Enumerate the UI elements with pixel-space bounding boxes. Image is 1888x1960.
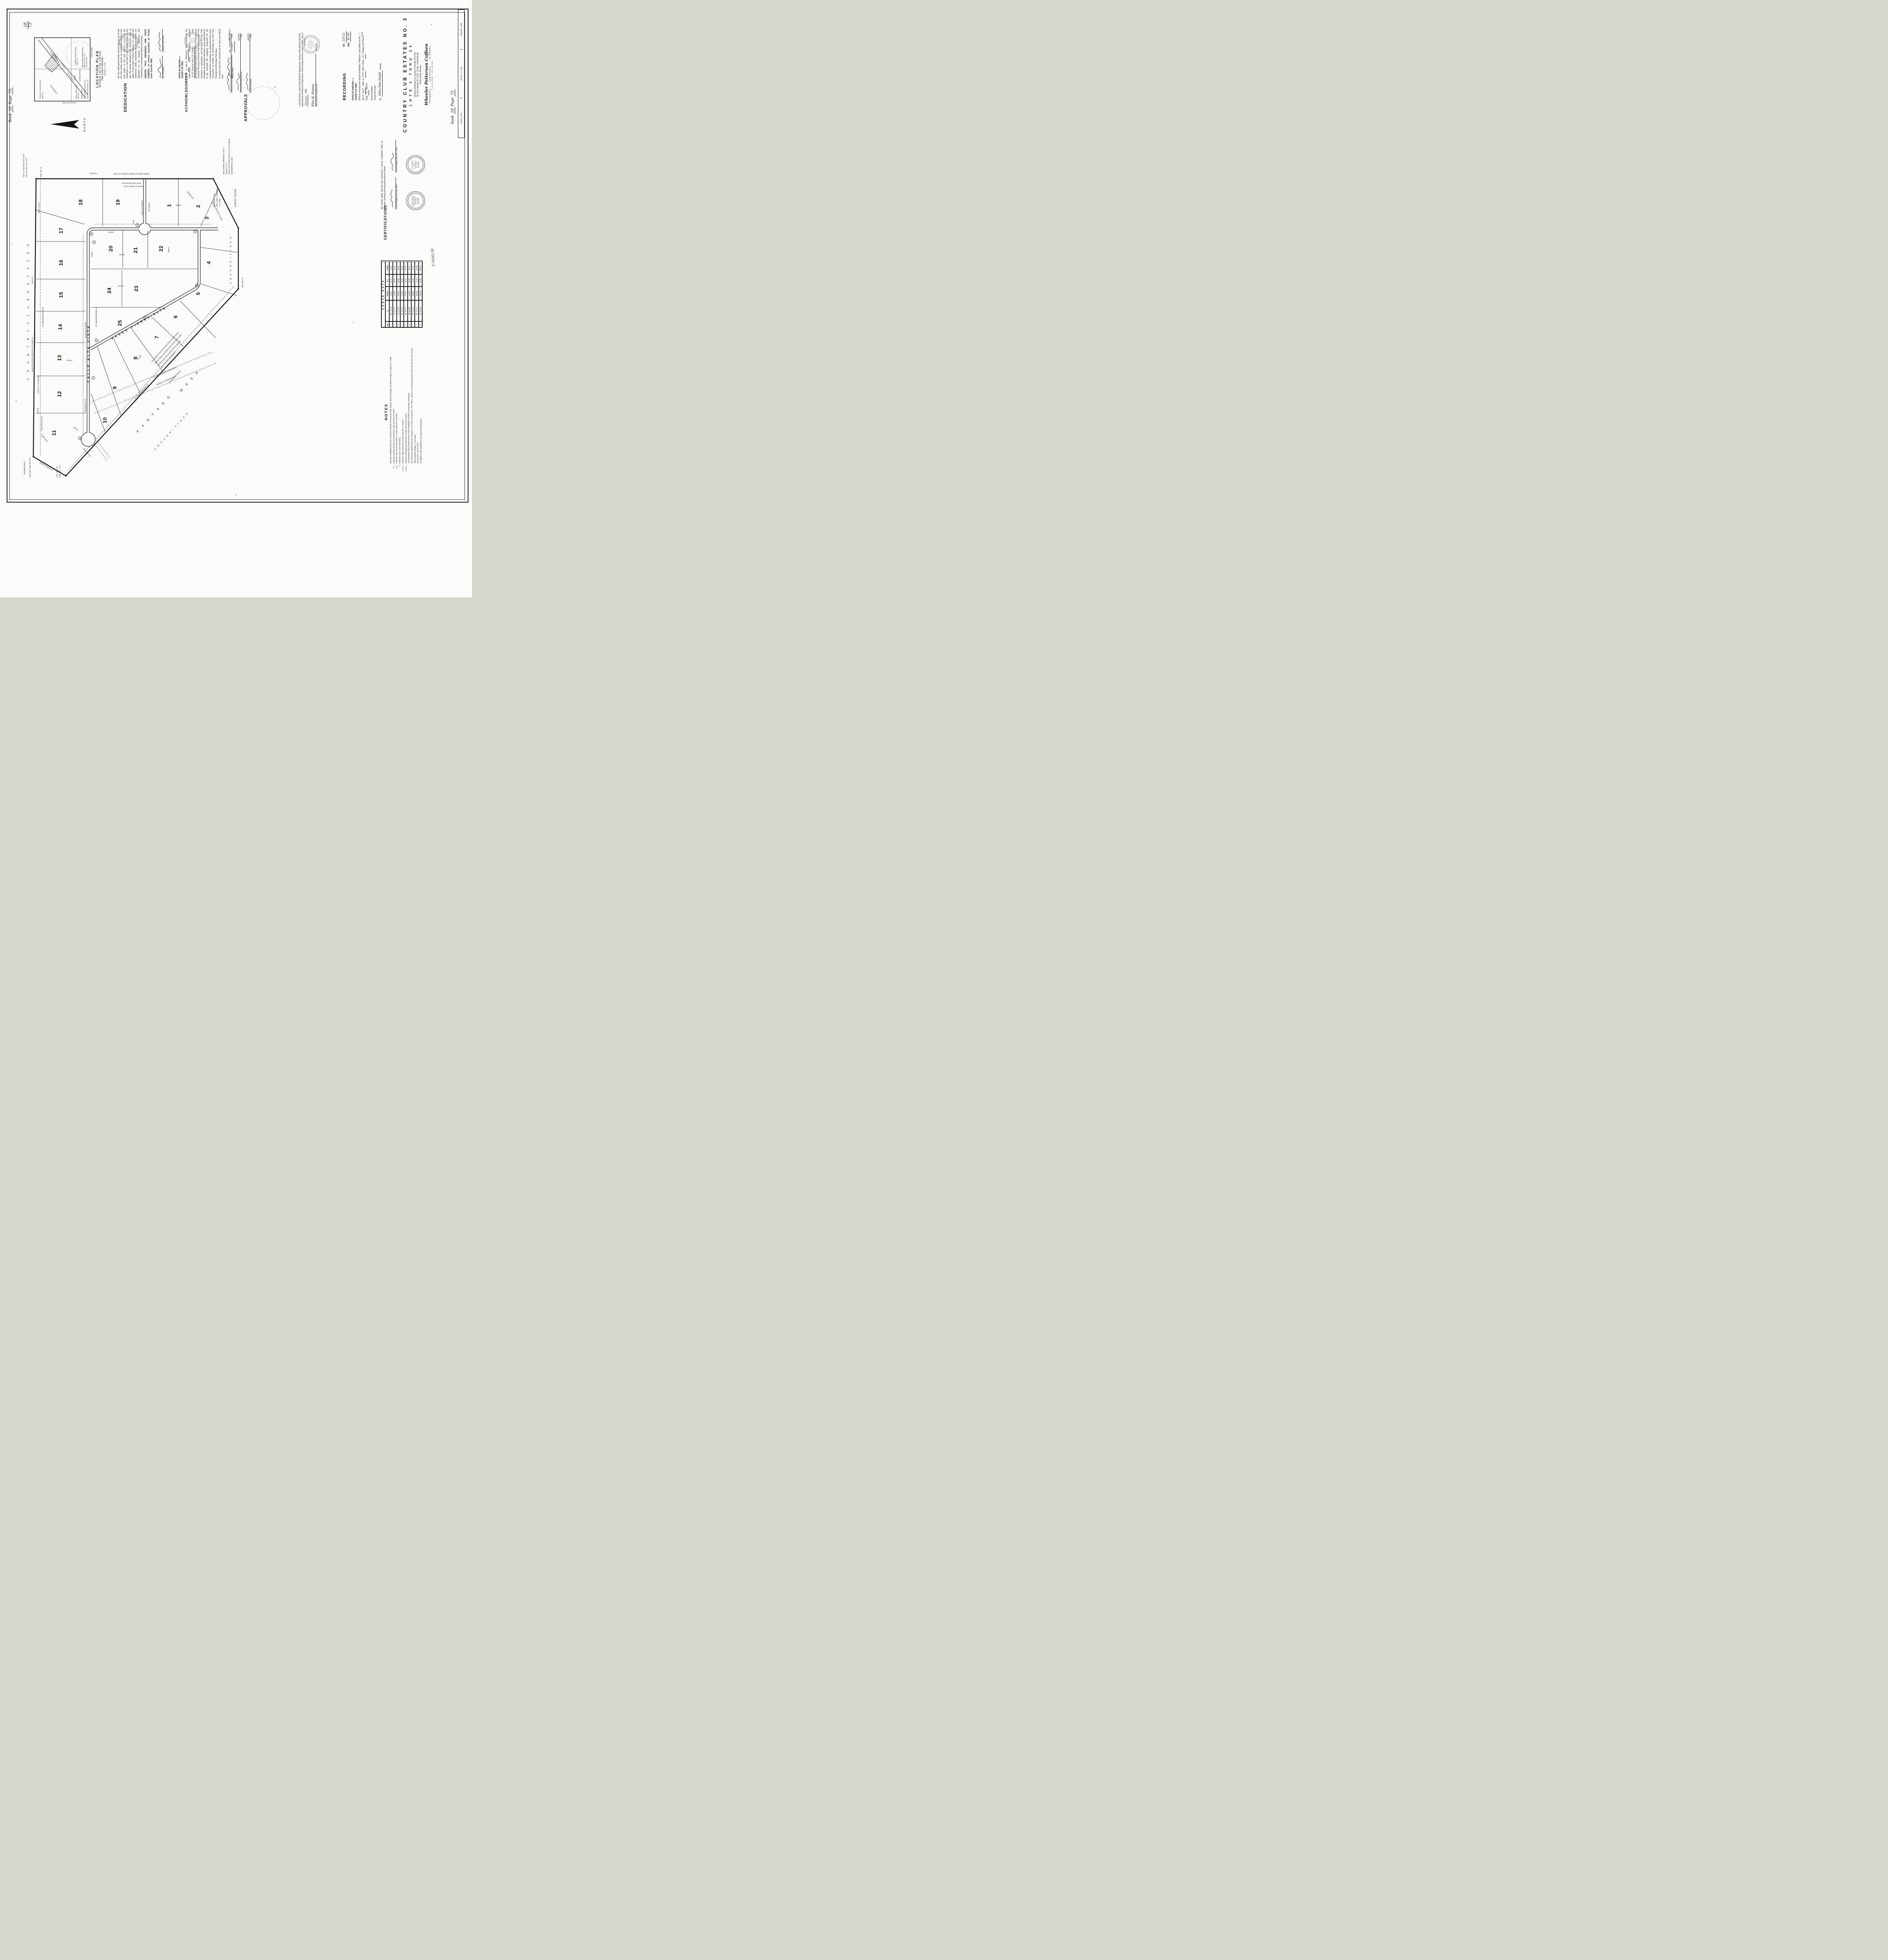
lot-number: 22 bbox=[158, 245, 164, 251]
north-arrow-icon bbox=[49, 114, 82, 135]
landscape-sheet: Book 18 Page 73 18 73 book 18 Page 73 C-… bbox=[0, 0, 472, 597]
map-label: NORTH (REC) N 0°02'00" E (MEAS.) 1770.86… bbox=[113, 173, 149, 175]
lp-label: UNSUB. bbox=[74, 75, 76, 80]
note-symbol bbox=[414, 465, 416, 475]
book-page-stamp-bottom: book 18 Page 73 bbox=[451, 89, 455, 124]
lp-label: GLENN STREET bbox=[81, 89, 83, 99]
note-text: Gross area = 21.43 acres bbox=[417, 333, 419, 463]
recording-text: thereof. bbox=[366, 83, 368, 89]
approval-label: County Planning Director bbox=[241, 72, 243, 93]
map-label: FND. 1/2" I.P. bbox=[40, 167, 42, 177]
dimension-label: 190.00' bbox=[119, 254, 125, 256]
map-label: TATION SHALL BE ISSUED SOUTH AND/OR bbox=[157, 340, 181, 367]
curve-cell: 25.00' bbox=[400, 287, 404, 300]
curve-cell: 5 bbox=[404, 321, 407, 327]
map-label: BLOCK 2 bbox=[90, 172, 98, 174]
lot-number: 15 bbox=[58, 292, 64, 298]
lp-label: CARLOS TERRACE M&P 12-18 bbox=[84, 80, 86, 99]
signature-scribble bbox=[245, 71, 250, 93]
curve-cell: 4 bbox=[400, 321, 404, 327]
signature-scribble bbox=[390, 151, 394, 172]
corporate-seal: ARIZONA TITLE INSURANCE AND TRUST CO. · … bbox=[119, 33, 138, 52]
sheet-strip: SHEET 1 OF 1 SCALE: 1" = 100' JANUARY, 1… bbox=[458, 9, 465, 138]
note-symbol bbox=[411, 465, 413, 475]
curve-cell: 150.00' bbox=[415, 287, 418, 300]
ack-day: 3 bbox=[185, 68, 189, 71]
curve-marker: 1 bbox=[93, 377, 95, 378]
date-word: Date bbox=[231, 34, 233, 38]
lot-number: 17 bbox=[58, 227, 64, 233]
note-text: Indicates new survey monument; 2" brass … bbox=[396, 333, 398, 463]
note-item: 5/8" aluminum capped steel pin, stamped … bbox=[411, 333, 413, 475]
lot-number: 9 bbox=[112, 386, 118, 389]
signature-scribble bbox=[236, 71, 240, 93]
note-text: The Developer will not pave streets of t… bbox=[408, 333, 410, 463]
recording-heading: RECORDING bbox=[342, 73, 348, 100]
map-label: MILLSTONE COMMERCIAL NO. 1 bbox=[223, 147, 225, 174]
ack-month: February bbox=[185, 49, 189, 61]
curve-cell: 2 bbox=[393, 321, 396, 327]
map-label: 15' UNDERGROUND U.E. bbox=[95, 307, 97, 327]
recording-time: 9:50 bbox=[362, 71, 366, 78]
recorder-name: Anna Sullinger bbox=[370, 31, 374, 100]
dimension-label: 120.00' bbox=[73, 426, 79, 431]
map-label: TOWNSHIP COR. bbox=[213, 193, 215, 207]
note-text: All utilities in this subdivision to be … bbox=[420, 333, 422, 463]
recording-state: STATE OF ARIZONA bbox=[352, 81, 354, 100]
curve-cell: 44.90' bbox=[411, 274, 415, 287]
curve-cell: 150.00' bbox=[411, 287, 415, 300]
note-item: ═ U.E. ═Indicates utility easement, loca… bbox=[402, 333, 404, 475]
certifications-body: We hereby certify that this plat represe… bbox=[381, 140, 387, 209]
firm-roles: ENGINEERS SURVEYORS PLANNERS bbox=[429, 11, 431, 138]
recording-no: 23112 bbox=[342, 31, 347, 42]
book-word: book bbox=[451, 115, 455, 124]
lot-number: 6 bbox=[172, 315, 178, 318]
note-text: Bearings established from the south line… bbox=[390, 333, 392, 463]
map-label: 450.65' N 0°02'08" E (M.) bbox=[123, 185, 143, 187]
signature-scribble bbox=[158, 58, 162, 78]
recording-text: Filed for record at the request of Wheel… bbox=[359, 36, 361, 100]
map-label: BLOCK 9 bbox=[31, 276, 33, 284]
county-seal: BOARD OF SUPERVISORS PIMA COUNTY ARIZONA bbox=[302, 35, 320, 53]
plat-desc: SE 1/4 of Section 36, T.13S., R.14E., G.… bbox=[417, 11, 419, 138]
curve-cell: 24.92' bbox=[404, 274, 407, 287]
curve-cell: 33° 18' 28" bbox=[411, 300, 415, 321]
dimension-label: 108.91' bbox=[168, 247, 170, 252]
date-word: Date bbox=[241, 34, 243, 38]
clerk-label: Clerk, Board of Supervisors bbox=[316, 54, 319, 107]
dedication-company: ARIZONA TITLE INSURANCE AND TRUST COMPAN… bbox=[145, 29, 153, 78]
ack-names: W. H. Driscoll and J. E. Green bbox=[192, 46, 195, 78]
curve-cell: 90° 00' 00" bbox=[408, 300, 411, 321]
firm-name: Wheeler Petterson Coffeen bbox=[424, 11, 429, 138]
plat-desc: Pima County, Arizona. bbox=[419, 11, 422, 138]
curve-marker: 4 bbox=[194, 230, 197, 232]
map-label: 25.00' N 0°02'08" E bbox=[141, 200, 143, 215]
plat-sheet-scan: Book 18 Page 73 18 73 book 18 Page 73 C-… bbox=[0, 0, 472, 597]
lp-label: M&P 8-75 bbox=[42, 92, 44, 99]
curve-cell: 25.00' bbox=[408, 287, 411, 300]
curve-cell: 25.00' bbox=[404, 287, 407, 300]
map-label: 10' UNDERGROUND U.E. bbox=[42, 307, 44, 327]
curve-col-delta: Δ bbox=[385, 300, 389, 321]
recording-text: , 1966, at bbox=[362, 79, 365, 87]
clerk-signature: Elsa B. Hanna bbox=[311, 54, 316, 107]
map-label: EXCLUDED bbox=[41, 434, 48, 443]
map-label: FND. 3/4" L.C.P. bbox=[59, 465, 61, 477]
lp-label: GLENN LOWELL ADD'N bbox=[76, 84, 77, 99]
curve-marker: 2 bbox=[79, 437, 82, 439]
note-item: Bearings established from the south line… bbox=[390, 333, 392, 475]
map-label: PAVED 20' DRAINAGEWAY bbox=[156, 375, 176, 386]
curve-cell: 101° 32' 08" bbox=[389, 300, 393, 321]
recording-fee-label: FEE: bbox=[348, 42, 350, 47]
dimension-label: N 0°12'43" E 160.00' bbox=[85, 322, 87, 338]
lot-number: 21 bbox=[133, 247, 138, 253]
location-plan-scale: SCALE 3" = 1 MI. bbox=[104, 34, 106, 103]
map-label: BLOCKS 1 & 2 bbox=[225, 162, 227, 174]
lot-number: 12 bbox=[56, 391, 62, 397]
curve-cell: 36.14' bbox=[397, 261, 400, 274]
book-number: 18 bbox=[9, 105, 13, 112]
street-name-calle-alta-vista: CALLE ALTA VISTA bbox=[87, 324, 90, 383]
map-label: BOOK 16 OF MAPS AND PLATS AT PAGE 58 bbox=[228, 139, 230, 174]
curve-cell: 150.00' bbox=[419, 287, 422, 300]
note-text: Indicates existing survey monument found… bbox=[393, 333, 395, 463]
approval-label: Sanitary District No. 1 bbox=[231, 74, 233, 93]
title-block: COUNTRY CLUB ESTATES NO. 3 LOTS 1 THRU 2… bbox=[403, 11, 434, 138]
map-label: 80' RADIAL bbox=[148, 202, 150, 211]
lot-number: 11 bbox=[51, 430, 57, 436]
plat-map-svg: 1 2 3 4 5 6 7 8 9 CALLE ALTA VISTA PASEO… bbox=[20, 139, 245, 480]
map-label: U N S U B D I V I D E D bbox=[154, 412, 189, 451]
note-symbol bbox=[408, 465, 410, 475]
lot-number: 19 bbox=[115, 199, 121, 205]
signature-scribble bbox=[227, 71, 231, 93]
firm-city: TUCSON, ARIZONA bbox=[432, 11, 434, 138]
dimension-label: 165.08' bbox=[108, 231, 114, 233]
fraction-bottom: 73 bbox=[28, 21, 33, 29]
curve-marker: 3 bbox=[136, 224, 139, 225]
curve-marker: 6 bbox=[96, 339, 98, 341]
curve-cell: 39° 10' 58" bbox=[419, 300, 422, 321]
drainage-easement-symbol: ═ D.E. ═ bbox=[405, 465, 407, 475]
map-label: CTR. SEC. 36 bbox=[56, 466, 58, 477]
faded-stamp bbox=[246, 86, 280, 120]
curve-data-table: CURVE DATA No. Δ Radius S.T. Length 1101… bbox=[381, 260, 423, 328]
curve-cell: 25.00' bbox=[408, 274, 411, 287]
notary-seal: NOTARY PUBLIC PIMA CO. ARIZONA bbox=[184, 32, 201, 49]
curve-cell: 39.27' bbox=[408, 261, 411, 274]
map-label: MARCH 27, 1948 bbox=[34, 333, 36, 347]
note-text: Total roadway mileage = 0.46 miles bbox=[414, 333, 416, 463]
map-label: 16' UNDERGROUND U.E. bbox=[134, 383, 149, 400]
map-label: N 0°06'29" E 250.00' bbox=[39, 461, 53, 472]
existing-monument-symbol: —□— bbox=[393, 465, 395, 475]
page-number: 73 bbox=[9, 87, 13, 94]
curve-cell: 89° 49' 25" bbox=[404, 300, 407, 321]
map-label: UNSUBDIVIDED bbox=[24, 461, 25, 474]
map-label: 1/16 COR. FND. 3/4" O.P. bbox=[29, 457, 31, 477]
board-text: , 1966. bbox=[305, 88, 307, 94]
lp-label: CRAYCROFT ROAD bbox=[62, 102, 76, 103]
note-item: Total roadway mileage = 0.46 miles bbox=[414, 333, 416, 475]
map-label: EXISTING 10' U.E. bbox=[41, 416, 43, 430]
assistant-secretary-label: Assistant Secretary bbox=[163, 29, 165, 52]
lot-number: 23 bbox=[133, 285, 139, 291]
fraction-top: 18 bbox=[24, 21, 28, 29]
curve-cell: 1 bbox=[389, 321, 393, 327]
dimension-label: 170.00' bbox=[67, 359, 73, 361]
curve-cell: 25.00' bbox=[393, 287, 396, 300]
signature-scribble bbox=[390, 187, 394, 209]
note-item: —□—Indicates existing survey monument fo… bbox=[393, 333, 395, 475]
corner-fraction: 18 73 bbox=[24, 21, 33, 29]
map-label: BOOK 8 OF MAPS AND PLATS AT PAGE 75 bbox=[31, 338, 33, 372]
book-page-stamp-top: Book 18 Page 73 bbox=[9, 87, 13, 122]
map-label: R=50' bbox=[133, 220, 134, 224]
curve-marker: 5 bbox=[93, 241, 96, 243]
vice-president-label: Vice President bbox=[163, 56, 165, 78]
curve-cell: 78° 27' 57" bbox=[393, 300, 396, 321]
approval-row: 4/6/66 County Planning Director Date bbox=[236, 34, 243, 93]
map-label: NOVEMBER 23, 1962 bbox=[231, 157, 233, 174]
seal-text: ARIZONA bbox=[194, 37, 196, 44]
lot-number: 10 bbox=[102, 417, 108, 423]
map-label: EXCLUDED bbox=[187, 191, 194, 200]
dimension-label: 153.00' bbox=[91, 252, 93, 257]
recording-fee: $5.00 bbox=[347, 31, 351, 42]
note-symbol bbox=[417, 465, 419, 475]
lot-number: 3 bbox=[204, 216, 210, 220]
ack-witness: In witness whereof I hereunto set my han… bbox=[219, 29, 225, 78]
curve-symbol: ① bbox=[399, 465, 401, 475]
curve-cell: 25.08' bbox=[400, 274, 404, 287]
lot-number: 4 bbox=[206, 261, 212, 264]
recording-text: day of bbox=[362, 95, 365, 100]
approval-row: 4/6/66 County Engineer Date bbox=[245, 34, 252, 93]
curve-cell: 102.57' bbox=[419, 261, 422, 274]
dimension-label: 215.00' bbox=[176, 204, 181, 206]
lot-number: 25 bbox=[117, 320, 123, 326]
note-symbol bbox=[420, 465, 422, 475]
curve-cell: 39.35' bbox=[400, 261, 404, 274]
curve-cell: 34.24' bbox=[393, 261, 396, 274]
seal-text: · SEAL · bbox=[130, 40, 132, 45]
note-item: ═ D.E. ═Indicates drainageway easement, … bbox=[405, 333, 407, 475]
map-label: U N S U B D I V I D E D bbox=[230, 236, 232, 284]
note-item: Gross area = 21.43 acres bbox=[417, 333, 419, 475]
lp-label: M&P 15-16 bbox=[78, 93, 79, 99]
faded-stamp bbox=[66, 41, 93, 67]
recording-page: 73 bbox=[366, 90, 369, 95]
plat-desc: Being a subdivision of a portion of the … bbox=[414, 11, 417, 138]
lot-number: 2 bbox=[195, 205, 201, 208]
note-text: Indicates drainageway easement, location… bbox=[405, 333, 407, 463]
curve-col-radius: Radius bbox=[385, 287, 389, 300]
map-label: P A N T A N O bbox=[136, 394, 172, 433]
plat-title: COUNTRY CLUB ESTATES NO. 3 bbox=[403, 11, 408, 138]
book-word: Book bbox=[9, 113, 13, 122]
curve-cell: 3 bbox=[397, 321, 400, 327]
map-label: FND. CONC. STAMPED bbox=[216, 188, 218, 207]
new-monument-symbol: —●— bbox=[396, 465, 398, 475]
recording-text: A.M. in Book bbox=[362, 60, 365, 71]
deputy-signature: Edna Mae Smyth bbox=[378, 71, 383, 97]
sheet-scale: SCALE: 1" = 100' bbox=[460, 49, 462, 98]
lot-number: 24 bbox=[106, 287, 112, 294]
curve-cell: 50.00' bbox=[397, 287, 400, 300]
ack-ss: s.s. bbox=[179, 56, 181, 59]
curve-marker: 8 bbox=[196, 285, 198, 286]
curve-cell: 20.41' bbox=[393, 274, 396, 287]
lot-number: 1 bbox=[166, 204, 172, 207]
location-plan-title: LOCATION PLAN bbox=[95, 34, 99, 103]
utility-easement-symbol: ═ U.E. ═ bbox=[402, 465, 404, 475]
lp-label: SAHUARA AVENUE bbox=[79, 69, 81, 82]
map-label: FND. 2" C.P. MK'D R-14, R-15 bbox=[23, 154, 25, 177]
curve-cell: 9 bbox=[419, 321, 422, 327]
lp-label: PANTANO bbox=[66, 72, 74, 81]
page-word: Page bbox=[451, 98, 455, 106]
recording-month: April bbox=[362, 87, 366, 94]
map-label: GRANT ROAD bbox=[234, 189, 237, 207]
curve-cell: 71.26' bbox=[415, 274, 418, 287]
page-number: 73 bbox=[451, 89, 455, 96]
curve-cell: 133.05' bbox=[415, 261, 418, 274]
registration-1: Arizona Registration No. 2067 bbox=[396, 177, 399, 209]
north-label: NORTH bbox=[84, 114, 86, 135]
certifications-section: CERTIFICATIONS We hereby certify that th… bbox=[381, 140, 399, 240]
approval-row: 4/6/66 Sanitary District No. 1 Date bbox=[227, 34, 233, 93]
signature-scribble bbox=[158, 31, 162, 52]
map-label: "L.S. 4785" bbox=[219, 198, 221, 207]
notes-section: NOTES Bearings established from the sout… bbox=[384, 333, 423, 475]
lot-number: 5 bbox=[195, 292, 201, 295]
lp-label: CASAS DE CARLOS M&P 10-96 bbox=[87, 80, 89, 99]
curve-cell: 90° 10' 35" bbox=[400, 300, 404, 321]
ack-text: On the bbox=[185, 72, 188, 78]
map-label: FND. 5/8" I.P. bbox=[241, 278, 243, 288]
lot-number: 18 bbox=[78, 199, 84, 205]
sheet-date: JANUARY, 1966 bbox=[460, 10, 462, 49]
ack-state: STATE OF ARIZONA bbox=[179, 59, 181, 78]
deputy-label: Deputy bbox=[379, 63, 383, 69]
surveyor-seal: REGISTERED LAND SURVEYOR No. 4785 ARIZON… bbox=[406, 155, 425, 174]
curve-cell: 18.90' bbox=[397, 274, 400, 287]
recorder-label: County Recorder bbox=[374, 31, 377, 100]
map-label: N 89°47'17" W 1555.66' bbox=[37, 375, 39, 394]
note-item: All utilities in this subdivision to be … bbox=[420, 333, 422, 475]
map-label: EAST LINE SECTION 36 bbox=[122, 182, 141, 184]
note-text: Indicates curve, see curve data. bbox=[399, 333, 401, 463]
lot-number: 16 bbox=[58, 260, 64, 265]
curve-cell: 44.30' bbox=[389, 261, 393, 274]
note-text: Indicates utility easement, location and… bbox=[402, 333, 404, 463]
book-number: 18 bbox=[451, 107, 455, 114]
board-text: day of bbox=[301, 33, 304, 38]
recording-section: RECORDING NO. 23112 FEE: $5.00 STATE OF … bbox=[342, 31, 383, 100]
lp-label: COUNTRY CLUB ESTATES bbox=[40, 80, 41, 99]
note-item: —●—Indicates new survey monument; 2" bra… bbox=[396, 333, 398, 475]
note-text: 5/8" aluminum capped steel pin, stamped … bbox=[411, 333, 413, 463]
date-word: Date bbox=[250, 34, 252, 38]
curve-cell: 53.38' bbox=[419, 274, 422, 287]
lot-number: 7 bbox=[154, 336, 160, 339]
note-item: ①Indicates curve, see curve data. bbox=[399, 333, 401, 475]
lp-label: UNSUBDIVIDED bbox=[50, 85, 58, 94]
curve-col-no: No. bbox=[385, 321, 389, 327]
curve-cell: 7 bbox=[411, 321, 415, 327]
north-arrow: NORTH bbox=[49, 114, 86, 135]
note-symbol bbox=[390, 465, 392, 475]
map-label: EXIST. 5' U.E. bbox=[38, 202, 40, 213]
certifications-heading: CERTIFICATIONS bbox=[381, 212, 399, 240]
dedication-heading: DEDICATION bbox=[118, 82, 165, 112]
seal-text: ARIZONA bbox=[312, 41, 314, 47]
recording-county: COUNTY OF PIMA bbox=[355, 83, 358, 100]
seal-text: ARIZONA bbox=[418, 162, 419, 168]
dimension-label: 160.00' bbox=[118, 285, 123, 287]
engineer-seal: REGISTERED PROFESSIONAL ENGINEER No. 206… bbox=[406, 191, 425, 210]
plat-subtitle: LOTS 1 THRU 25 bbox=[409, 11, 412, 138]
board-month: February bbox=[305, 95, 308, 107]
curve-cell: 8 bbox=[415, 321, 418, 327]
lot-number: 14 bbox=[57, 324, 63, 330]
curve-col-st: S.T. bbox=[385, 274, 389, 287]
page-word: Page bbox=[9, 96, 13, 104]
sheet-count: SHEET 1 OF 1 bbox=[460, 98, 462, 138]
curve-data-title: CURVE DATA bbox=[381, 261, 385, 327]
curve-col-length: Length bbox=[385, 261, 389, 274]
notes-heading: NOTES bbox=[384, 333, 388, 420]
curve-cell: 30.62' bbox=[389, 274, 393, 287]
registration-2: Arizona Registration No. 4785 bbox=[396, 140, 399, 172]
map-label: EXISTING 5' U.E. bbox=[84, 399, 86, 412]
map-label: C O U N T R Y C L U B E S T A T E S bbox=[27, 241, 30, 380]
note-item: The Developer will not pave streets of t… bbox=[408, 333, 410, 475]
recording-by: By bbox=[379, 98, 383, 100]
curve-cell: 6 bbox=[408, 321, 411, 327]
dimension-label: 315.80' bbox=[137, 355, 142, 360]
recording-book: 18 bbox=[362, 54, 366, 59]
recording-day: 7 bbox=[359, 32, 362, 35]
curve-cell: 87.24' bbox=[411, 261, 415, 274]
curve-cell: 41° 24' 35" bbox=[397, 300, 400, 321]
map-label: SEC. 36, SEC. 31, T.13 S. bbox=[25, 157, 27, 177]
map-label: W A S H bbox=[179, 369, 201, 392]
ack-text: day of bbox=[185, 61, 188, 67]
dimension-label: 246.00' bbox=[37, 408, 39, 413]
curve-cell: 25.00' bbox=[389, 287, 393, 300]
recording-ss: s.s. bbox=[352, 78, 354, 81]
seal-text: ARIZONA bbox=[418, 198, 419, 204]
curve-cell: 50° 49' 22" bbox=[415, 300, 418, 321]
lot-number: 20 bbox=[108, 245, 114, 251]
recording-no-label: NO. bbox=[343, 43, 345, 47]
curve-cell: 39.19' bbox=[404, 261, 407, 274]
ack-county: COUNTY OF PIMA bbox=[182, 61, 184, 78]
curve-marker: 9 bbox=[91, 233, 93, 234]
lot-number: 13 bbox=[56, 355, 62, 361]
